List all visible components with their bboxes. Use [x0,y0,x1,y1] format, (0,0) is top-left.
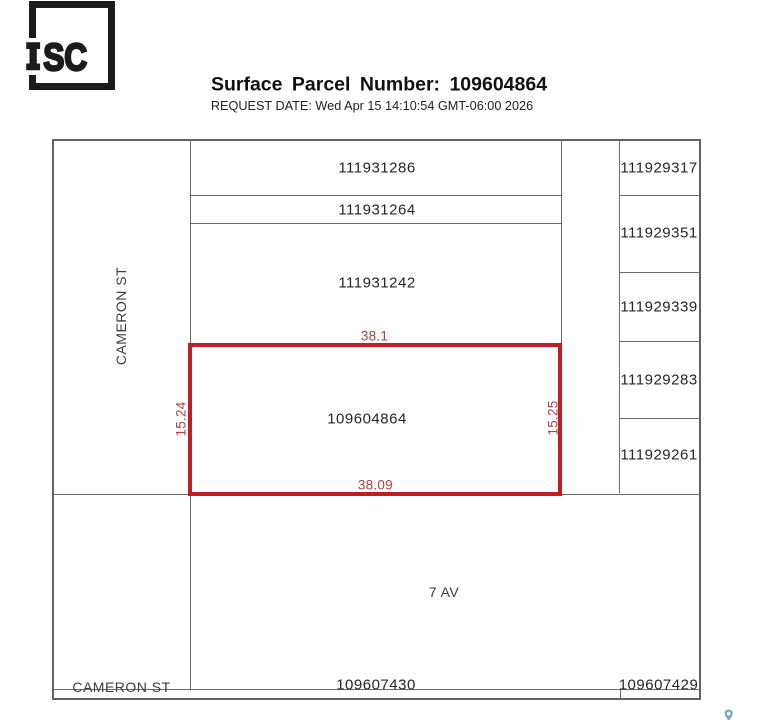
svg-text:SC: SC [43,37,87,76]
